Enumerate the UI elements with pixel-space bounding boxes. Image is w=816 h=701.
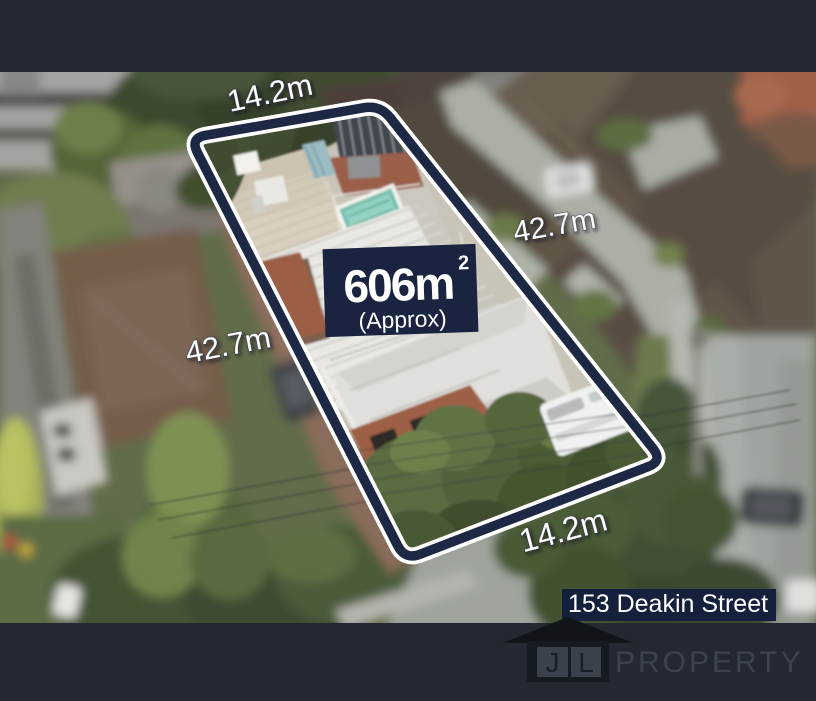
svg-text:606m: 606m (343, 257, 454, 313)
svg-text:153 Deakin Street: 153 Deakin Street (568, 590, 768, 618)
svg-text:L: L (578, 647, 594, 678)
svg-text:J: J (546, 647, 560, 678)
svg-text:(Approx): (Approx) (358, 305, 447, 334)
svg-text:2: 2 (458, 252, 470, 274)
svg-text:PROPERTY: PROPERTY (615, 646, 804, 679)
